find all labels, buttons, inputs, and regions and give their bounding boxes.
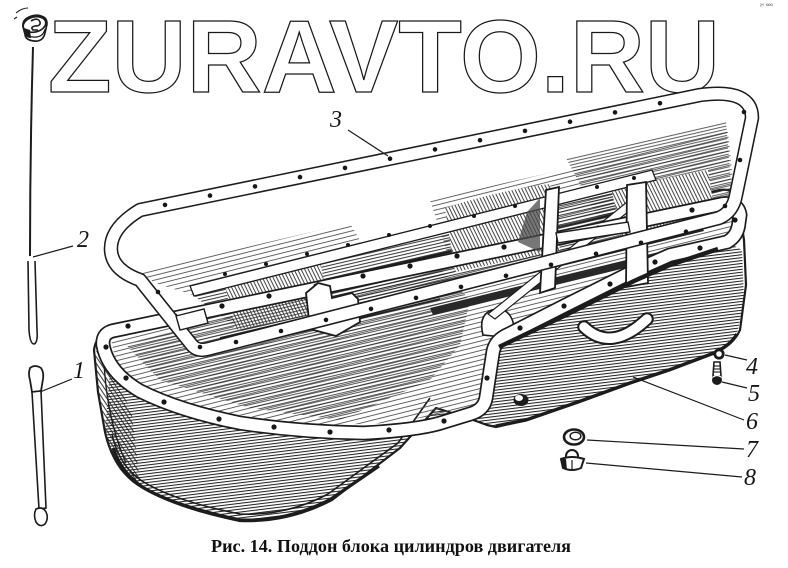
svg-text:3: 3 — [329, 107, 342, 133]
svg-text:6: 6 — [746, 409, 758, 435]
svg-text:7: 7 — [746, 437, 759, 463]
svg-text:4: 4 — [746, 354, 758, 380]
svg-text:Рис. 14. Поддон блока цилиндро: Рис. 14. Поддон блока цилиндров двигател… — [211, 536, 571, 556]
svg-text:²° ººº: ²° ººº — [760, 3, 773, 10]
svg-text:1: 1 — [73, 358, 85, 384]
svg-text:2: 2 — [77, 227, 89, 253]
svg-text:ZURAVTO.RU: ZURAVTO.RU — [48, 0, 720, 114]
svg-text:5: 5 — [748, 381, 760, 407]
svg-text:8: 8 — [744, 465, 756, 491]
